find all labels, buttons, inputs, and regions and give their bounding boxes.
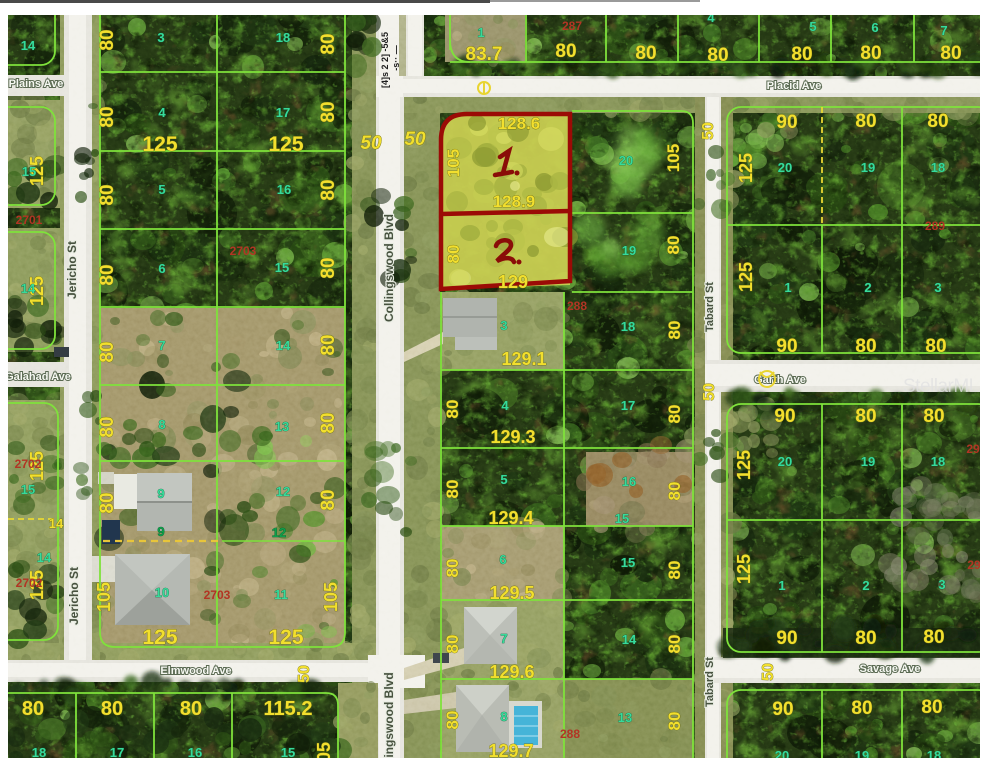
svg-text:80: 80 [318, 33, 339, 54]
svg-text:125: 125 [734, 554, 754, 584]
svg-text:7: 7 [158, 338, 165, 353]
svg-text:Jericho St: Jericho St [65, 241, 79, 299]
svg-text:80: 80 [923, 406, 944, 427]
svg-text:11: 11 [274, 587, 288, 602]
svg-text:2702: 2702 [16, 576, 43, 590]
svg-text:2: 2 [864, 280, 871, 295]
svg-text:80: 80 [707, 45, 728, 66]
svg-text:80: 80 [101, 698, 123, 720]
svg-text:29: 29 [967, 558, 981, 572]
svg-text:125: 125 [736, 153, 756, 183]
svg-text:125: 125 [736, 262, 756, 292]
svg-text:50: 50 [296, 665, 313, 683]
svg-text:18: 18 [32, 745, 46, 760]
svg-text:80: 80 [97, 106, 118, 127]
svg-text:6: 6 [158, 261, 165, 276]
svg-text:80: 80 [97, 264, 118, 285]
svg-text:288: 288 [567, 299, 587, 313]
svg-text:2702: 2702 [15, 457, 42, 471]
svg-text:289: 289 [925, 219, 945, 233]
svg-text:5: 5 [809, 19, 816, 34]
svg-text:129.4: 129.4 [488, 508, 533, 528]
svg-text:18: 18 [621, 319, 635, 334]
svg-text:105: 105 [444, 149, 463, 177]
svg-text:129.6: 129.6 [489, 662, 534, 682]
svg-text:80: 80 [791, 44, 812, 65]
svg-text:80: 80 [665, 712, 684, 731]
svg-text:9: 9 [157, 486, 164, 501]
svg-text:80: 80 [443, 400, 462, 419]
svg-text:15: 15 [621, 555, 635, 570]
svg-text:17: 17 [276, 105, 290, 120]
svg-text:125: 125 [734, 450, 754, 480]
svg-text:90: 90 [774, 406, 795, 427]
svg-text:15: 15 [275, 260, 289, 275]
svg-text:80: 80 [318, 334, 339, 355]
svg-text:90: 90 [772, 699, 793, 720]
svg-text:50: 50 [760, 663, 777, 681]
svg-text:1: 1 [784, 280, 791, 295]
svg-text:80: 80 [927, 111, 948, 132]
svg-text:80: 80 [851, 698, 872, 719]
svg-text:8: 8 [158, 417, 165, 432]
svg-text:287: 287 [562, 19, 582, 33]
svg-text:50: 50 [360, 133, 382, 154]
svg-text:Plains Ave: Plains Ave [9, 78, 64, 90]
svg-text:80: 80 [664, 236, 683, 255]
svg-text:2: 2 [862, 578, 869, 593]
svg-text:14: 14 [276, 338, 291, 353]
svg-text:18: 18 [276, 30, 290, 45]
svg-text:125: 125 [142, 133, 177, 156]
svg-text:20: 20 [778, 454, 792, 469]
svg-text:80: 80 [318, 489, 339, 510]
svg-text:80: 80 [180, 698, 202, 720]
svg-text:10: 10 [155, 585, 169, 600]
svg-text:80: 80 [860, 43, 881, 64]
svg-text:80: 80 [925, 336, 946, 357]
svg-text:19: 19 [861, 160, 875, 175]
svg-text:6: 6 [499, 552, 506, 567]
svg-text:129.1: 129.1 [501, 349, 546, 369]
svg-text:80: 80 [318, 257, 339, 278]
svg-text:7: 7 [940, 23, 947, 38]
svg-text:Jericho St: Jericho St [67, 567, 81, 625]
svg-text:6: 6 [871, 20, 878, 35]
svg-text:80: 80 [855, 628, 876, 649]
svg-text:7: 7 [500, 631, 507, 646]
svg-text:16: 16 [188, 745, 202, 760]
svg-text:80: 80 [443, 480, 462, 499]
svg-text:3: 3 [934, 280, 941, 295]
svg-text:15: 15 [22, 164, 36, 179]
svg-text:129.7: 129.7 [488, 741, 533, 761]
svg-text:80: 80 [97, 29, 118, 50]
svg-text:80: 80 [665, 321, 684, 340]
svg-text:125: 125 [142, 626, 177, 649]
svg-text:125: 125 [268, 626, 303, 649]
svg-text:80: 80 [665, 405, 684, 424]
svg-text:80: 80 [444, 245, 463, 264]
svg-text:128.9: 128.9 [493, 192, 536, 211]
svg-text:8: 8 [500, 709, 507, 724]
svg-text:125: 125 [268, 133, 303, 156]
svg-text:2701: 2701 [16, 213, 43, 227]
svg-text:Savage Ave: Savage Ave [860, 663, 921, 675]
svg-text:90: 90 [776, 112, 797, 133]
svg-text:Galahad Ave: Galahad Ave [5, 371, 71, 383]
svg-text:13: 13 [275, 419, 289, 434]
svg-text:14: 14 [49, 516, 64, 531]
svg-text:80: 80 [635, 43, 656, 64]
svg-text:12: 12 [276, 484, 290, 499]
svg-text:50: 50 [701, 383, 718, 401]
svg-text:StellarMLS: StellarMLS [903, 376, 991, 397]
svg-text:3: 3 [500, 318, 507, 333]
svg-text:19: 19 [861, 454, 875, 469]
svg-text:Tabard St: Tabard St [704, 282, 716, 332]
svg-text:129: 129 [498, 272, 528, 292]
svg-text:17: 17 [110, 745, 124, 760]
svg-text:105: 105 [94, 582, 114, 612]
svg-text:80: 80 [855, 406, 876, 427]
svg-text:4: 4 [158, 105, 166, 120]
svg-text:80: 80 [97, 492, 118, 513]
svg-text:80: 80 [665, 635, 684, 654]
svg-text:14: 14 [622, 632, 637, 647]
svg-text:15: 15 [21, 482, 35, 497]
svg-text:Placid Ave: Placid Ave [767, 80, 822, 92]
svg-text:4: 4 [501, 398, 509, 413]
svg-text:80: 80 [318, 412, 339, 433]
svg-text:Collingswood Blvd: Collingswood Blvd [382, 214, 396, 322]
svg-text:80: 80 [97, 341, 118, 362]
svg-text:80: 80 [921, 697, 942, 718]
svg-text:105: 105 [664, 144, 683, 172]
svg-text:1: 1 [477, 25, 484, 40]
svg-text:105: 105 [321, 582, 341, 612]
svg-text:80: 80 [855, 336, 876, 357]
svg-text:129.3: 129.3 [490, 427, 535, 447]
svg-text:18: 18 [931, 454, 945, 469]
svg-text:13: 13 [618, 710, 632, 725]
svg-text:5: 5 [500, 472, 507, 487]
svg-text:1: 1 [778, 578, 785, 593]
svg-text:80: 80 [22, 698, 44, 720]
svg-text:80: 80 [443, 559, 462, 578]
svg-text:129.5: 129.5 [489, 583, 534, 603]
svg-text:80: 80 [665, 482, 684, 501]
svg-text:80: 80 [443, 711, 462, 730]
svg-text:18: 18 [931, 160, 945, 175]
svg-text:50: 50 [404, 129, 426, 150]
svg-text:80: 80 [318, 179, 339, 200]
svg-text:128.6: 128.6 [498, 114, 541, 133]
svg-text:80: 80 [318, 101, 339, 122]
svg-text:90: 90 [776, 628, 797, 649]
svg-text:80: 80 [555, 41, 576, 62]
svg-text:Elmwood Ave: Elmwood Ave [160, 665, 231, 677]
svg-text:80: 80 [665, 561, 684, 580]
svg-text:15: 15 [281, 745, 295, 760]
svg-text:14: 14 [21, 281, 36, 296]
svg-text:3: 3 [938, 577, 945, 592]
svg-text:80: 80 [940, 43, 961, 64]
svg-text:83.7: 83.7 [466, 44, 503, 65]
svg-text:80: 80 [923, 627, 944, 648]
svg-text:17: 17 [621, 398, 635, 413]
svg-text:-s·· —: -s·· — [391, 45, 401, 71]
svg-text:80: 80 [97, 416, 118, 437]
svg-text:12: 12 [272, 525, 286, 540]
svg-text:90: 90 [776, 336, 797, 357]
svg-text:3: 3 [157, 30, 164, 45]
svg-text:20: 20 [619, 153, 633, 168]
svg-text:ingswood Blvd: ingswood Blvd [382, 672, 396, 757]
svg-text:2703: 2703 [204, 588, 231, 602]
svg-text:Tabard St: Tabard St [704, 657, 716, 707]
svg-text:16: 16 [277, 182, 291, 197]
svg-text:80: 80 [855, 111, 876, 132]
svg-text:80: 80 [443, 635, 462, 654]
svg-text:15: 15 [615, 511, 629, 526]
svg-text:80: 80 [97, 184, 118, 205]
svg-text:2703: 2703 [230, 244, 257, 258]
svg-text:16: 16 [622, 474, 636, 489]
svg-text:115.2: 115.2 [264, 698, 313, 720]
svg-text:9: 9 [157, 524, 164, 539]
svg-text:[4]s 2 2] -5&5: [4]s 2 2] -5&5 [380, 32, 390, 88]
svg-text:14: 14 [37, 550, 52, 565]
svg-text:19: 19 [622, 243, 636, 258]
svg-text:14: 14 [21, 38, 36, 53]
svg-text:5: 5 [158, 182, 165, 197]
svg-text:20: 20 [778, 160, 792, 175]
svg-text:50: 50 [700, 122, 717, 140]
svg-text:288: 288 [560, 727, 580, 741]
svg-text:29: 29 [966, 442, 980, 456]
